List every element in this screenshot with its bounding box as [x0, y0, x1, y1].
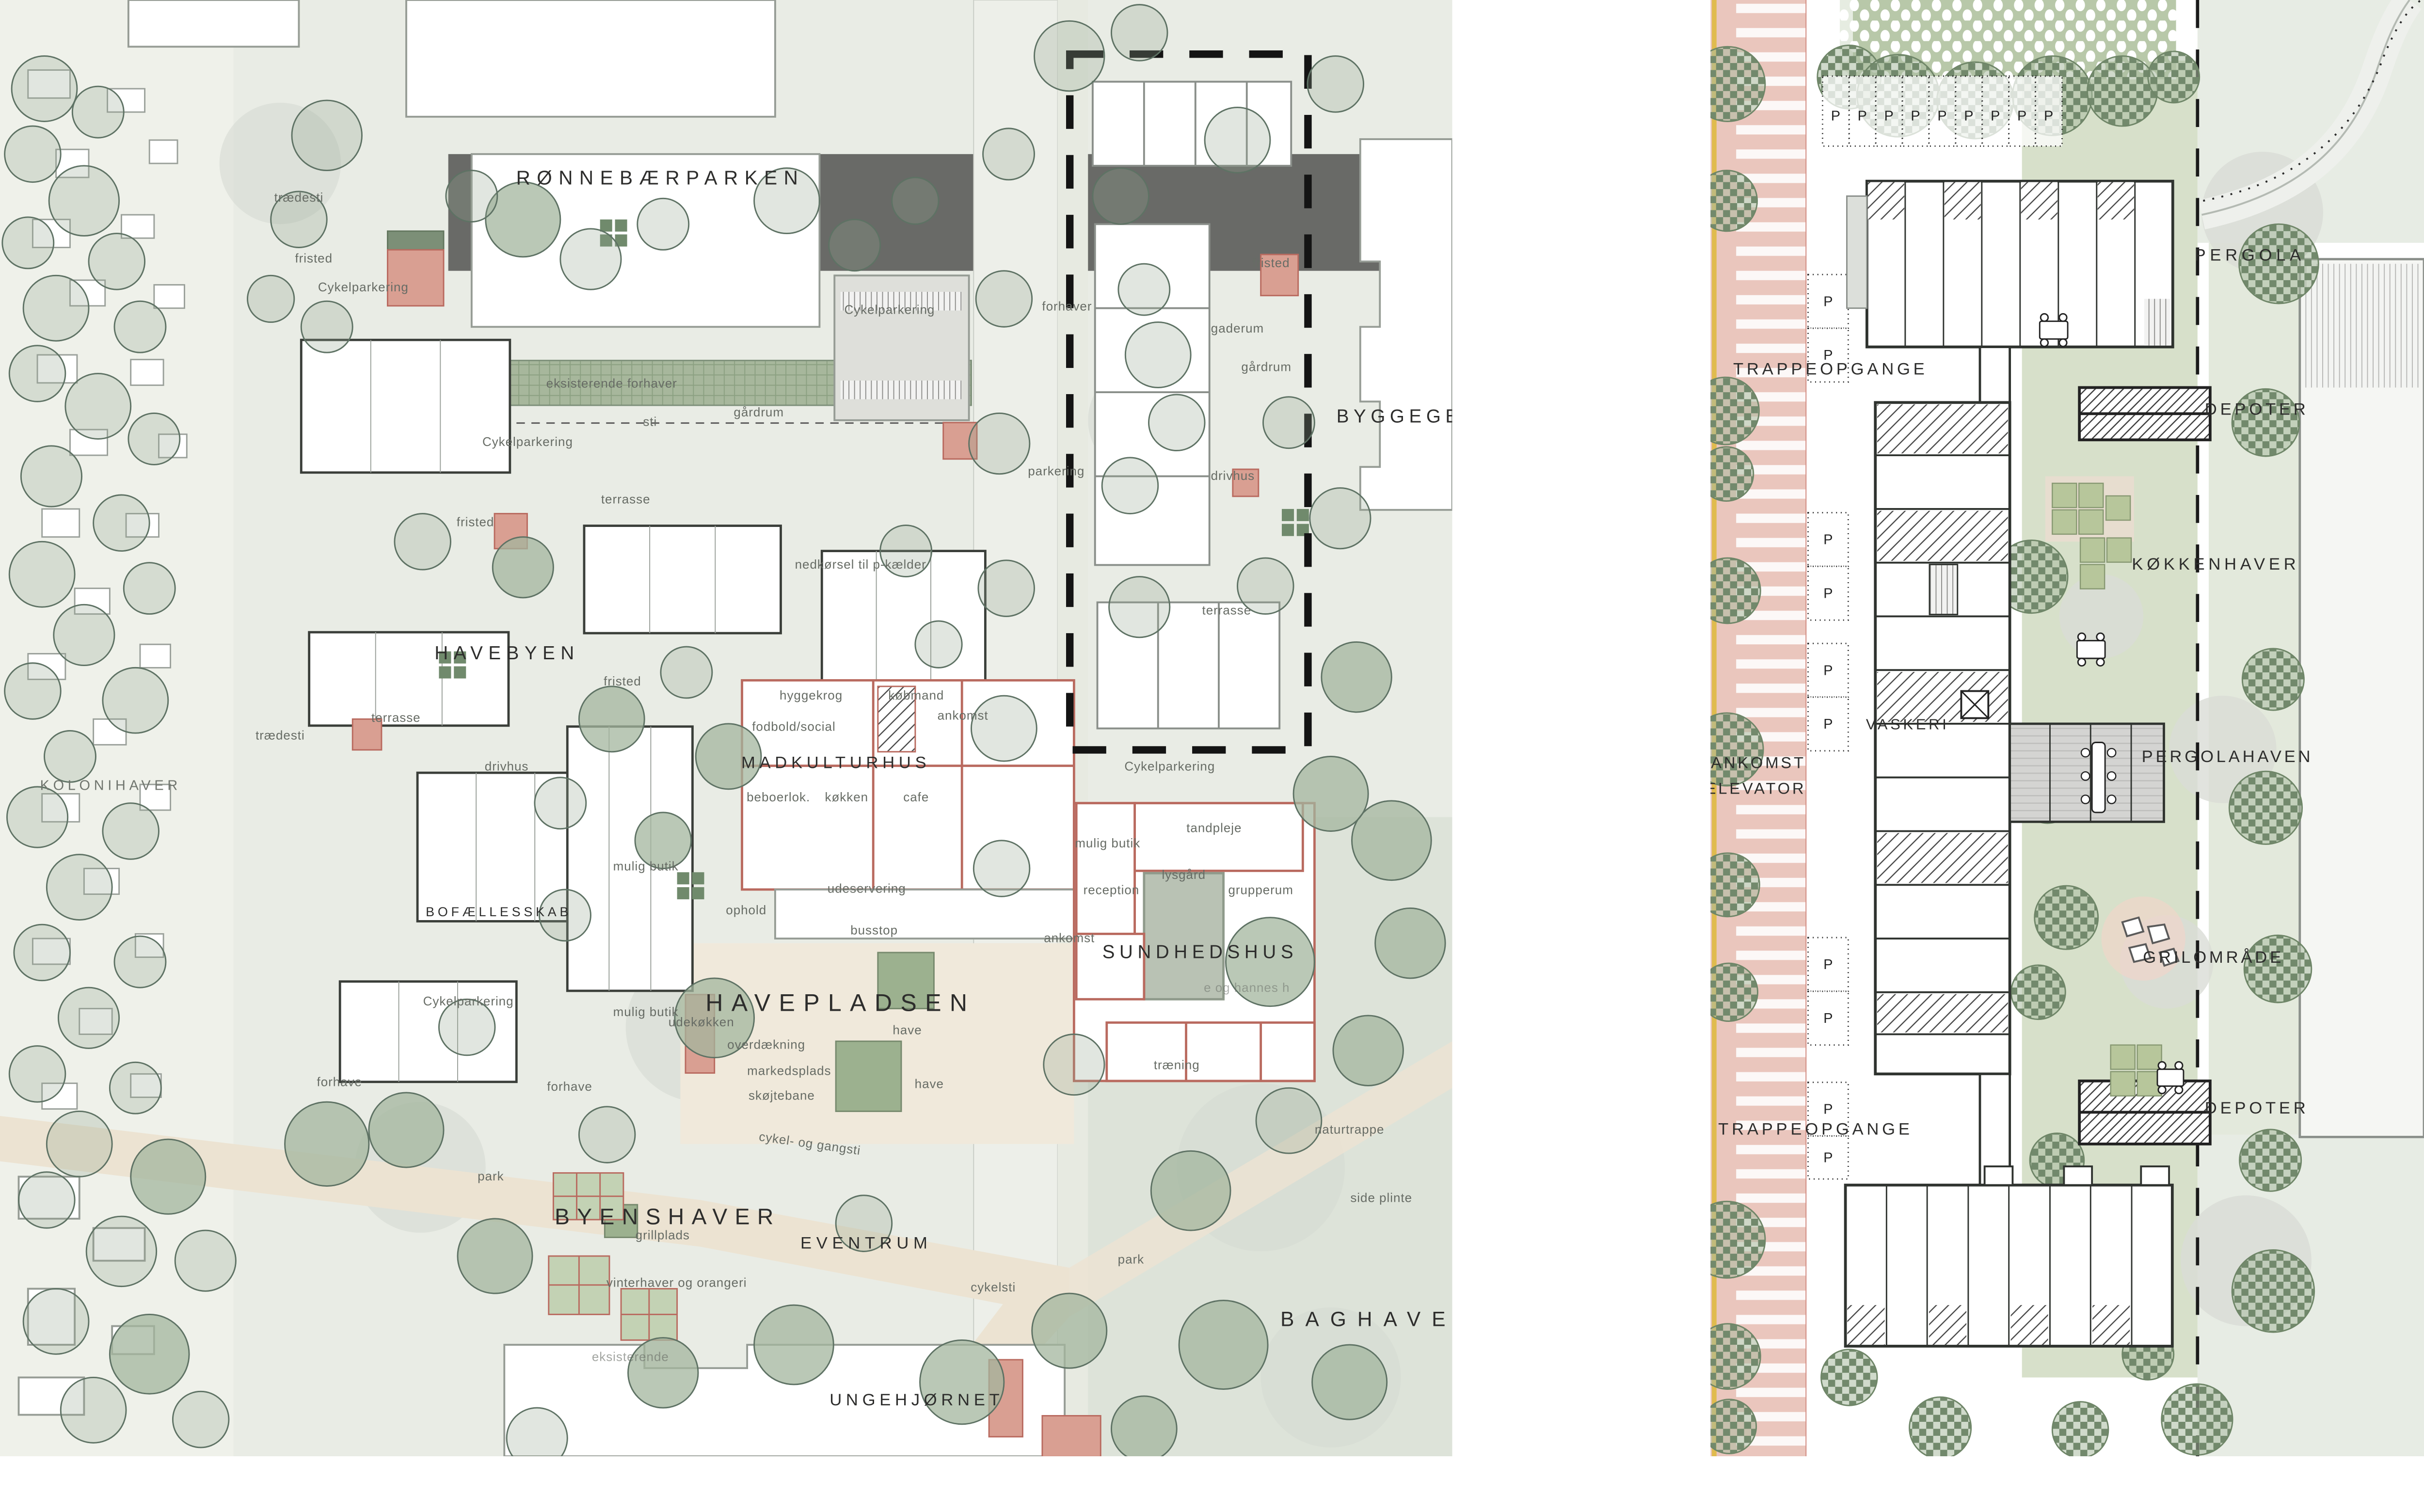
label-gaardrum1: gårdrum — [734, 405, 784, 419]
label-madkulturhus: MADKULTURHUS — [741, 753, 930, 772]
label-vaskeri: VASKERI — [1866, 716, 1949, 733]
label-sti: sti — [643, 414, 657, 429]
parking-p-marker: P — [1823, 716, 1833, 732]
label-ronnebaerparken: RØNNEBÆRPARKEN — [516, 166, 805, 189]
label-grilomraade: GRILOMRÅDE — [2143, 948, 2284, 967]
label-markedsplads: markedsplads — [747, 1063, 831, 1078]
label-terrasse1: terrasse — [601, 492, 651, 506]
parking-p-marker: P — [1831, 109, 1840, 124]
label-pergola: PERGOLA — [2195, 246, 2305, 264]
parking-p-marker: P — [1823, 586, 1833, 601]
label-drivhus2: drivhus — [485, 759, 529, 773]
label-kolonihaver: KOLONIHAVER — [40, 778, 181, 794]
label-cykelparkering2: Cykelparkering — [844, 302, 935, 317]
label-kokkenhaver: KØKKENHAVER — [2132, 555, 2299, 573]
label-cafe: cafe — [903, 790, 929, 804]
label-fodbold_social: fodbold/social — [752, 719, 835, 733]
left-panel — [0, 0, 1452, 1456]
stair-shaft — [1930, 565, 1958, 615]
parking-p-marker: P — [1964, 109, 1973, 124]
grill-spot — [2101, 896, 2185, 980]
label-gaderum: gaderum — [1211, 321, 1264, 335]
label-hannes: e og hannes h — [1204, 980, 1290, 995]
south-terrace-row — [1846, 1166, 2172, 1346]
label-bofaellesskab: BOFÆLLESSKAB — [426, 905, 572, 919]
label-side_plinte: side plinte — [1350, 1190, 1412, 1205]
label-depoter_top: DEPOTER — [2205, 400, 2309, 418]
label-skojtebane: skøjtebane — [749, 1088, 815, 1102]
label-reception: reception — [1084, 883, 1140, 897]
parking-p-marker: P — [2017, 109, 2026, 124]
label-kobmand: købmand — [888, 688, 944, 702]
parking-p-marker: P — [1823, 532, 1833, 548]
label-ankomst: ANKOMST — [1711, 753, 1806, 771]
label-fristed4: fristed — [604, 674, 641, 688]
right-panel: PPPPPPPPPPPPPPPPPPP — [1689, 0, 2424, 1456]
label-pergolahaven: PERGOLAHAVEN — [2142, 748, 2313, 766]
label-ophold: ophold — [726, 903, 766, 917]
label-cykelparkering1: Cykelparkering — [318, 280, 409, 294]
label-ungehjornet: UNGEHJØRNET — [829, 1391, 1004, 1409]
label-depoter_bottom: DEPOTER — [2205, 1099, 2309, 1117]
label-baghave: BAGHAVE — [1280, 1308, 1457, 1331]
label-overdaekning: overdækning — [727, 1037, 805, 1051]
label-naturtrappe: naturtrappe — [1315, 1122, 1385, 1137]
label-cykelparkering5: Cykelparkering — [423, 994, 514, 1008]
label-parkering: parkering — [1028, 464, 1084, 478]
label-terrasse2: terrasse — [1202, 603, 1252, 618]
label-sundhedshus: SUNDHEDSHUS — [1102, 941, 1298, 962]
label-traedesti2: trædesti — [255, 728, 305, 743]
label-forhaver: forhaver — [1042, 299, 1092, 314]
parking-p-marker: P — [1937, 109, 1946, 124]
label-terrasse3: terrasse — [371, 710, 421, 725]
bike-rack-rows2 — [841, 381, 962, 399]
parking-p-marker: P — [1823, 294, 1833, 309]
label-lysgaard: lysgård — [1162, 867, 1206, 882]
label-eventrum: EVENTRUM — [800, 1234, 932, 1253]
label-forhave1: forhave — [317, 1074, 362, 1089]
elevator-symbol — [1961, 691, 1988, 718]
east-building — [2300, 259, 2424, 1137]
label-grupperum: grupperum — [1228, 883, 1293, 897]
label-ankomst1: ankomst — [938, 708, 989, 722]
label-byggege: BYGGEGE — [1337, 406, 1463, 427]
label-vinterhaver: vinterhaver og orangeri — [606, 1275, 747, 1290]
label-eksisterende: eksisterende — [592, 1350, 669, 1364]
label-fristed3: fristed — [457, 515, 494, 529]
parking-p-marker: P — [1823, 1011, 1833, 1026]
label-eksisterende_forhaver: eksisterende forhaver — [546, 376, 677, 390]
label-ankomst2: ankomst — [1044, 931, 1095, 945]
label-havebyen: HAVEBYEN — [434, 643, 579, 664]
main-slab-building — [1875, 347, 2009, 1185]
label-gaardrum2: gårdrum — [1241, 360, 1292, 374]
label-hyggekrog: hyggekrog — [780, 688, 843, 702]
label-udeservering: udeservering — [828, 881, 906, 896]
label-traedesti1: trædesti — [274, 190, 324, 205]
parking-p-marker: P — [1911, 109, 1920, 124]
label-elevator: ELEVATOR — [1706, 779, 1806, 797]
label-traening: træning — [1154, 1058, 1200, 1072]
ungehjornet-pavilion2 — [1042, 1416, 1100, 1456]
parking-p-marker: P — [1823, 1102, 1833, 1117]
parking-p-marker: P — [1858, 109, 1867, 124]
label-park2: park — [1118, 1252, 1144, 1266]
label-have2: have — [915, 1076, 944, 1091]
label-busstop: busstop — [850, 923, 898, 937]
label-nedkoersel: nedkørsel til p-kælder — [795, 557, 926, 572]
label-park1: park — [478, 1169, 504, 1183]
label-kokken: køkken — [825, 790, 868, 804]
panel-gutter — [1452, 0, 1711, 1456]
label-havepladsen: HAVEPLADSEN — [705, 989, 975, 1016]
label-cykelsti: cykelsti — [971, 1280, 1016, 1294]
label-fristed2: fristed — [1252, 255, 1290, 270]
parking-p-marker: P — [1991, 109, 2000, 124]
label-trappeopgange_top: TRAPPEOPGANGE — [1733, 360, 1928, 378]
parking-p-marker: P — [1823, 957, 1833, 972]
label-mulig_butik2: mulig butik — [613, 859, 679, 873]
label-fristed1: fristed — [295, 251, 333, 265]
label-byenshaver: BYENSHAVER — [555, 1204, 781, 1229]
parking-p-marker: P — [1823, 663, 1833, 678]
label-have1: have — [893, 1022, 922, 1037]
site-plan-canvas: PPPPPPPPPPPPPPPPPPP — [0, 0, 2424, 1456]
parking-p-marker: P — [2044, 109, 2053, 124]
porches — [1985, 1166, 2169, 1185]
long-table — [2092, 742, 2105, 812]
label-grillplads: grillplads — [636, 1227, 690, 1242]
label-forhave2: forhave — [547, 1079, 592, 1094]
parking-p-marker: P — [1823, 1150, 1833, 1165]
parking-p-marker: P — [1884, 109, 1894, 124]
label-cykelparkering4: Cykelparkering — [1124, 759, 1215, 773]
label-tandpleje: tandpleje — [1186, 820, 1242, 835]
label-mulig_butik1: mulig butik — [1075, 836, 1140, 850]
pergola-deck-wing — [2010, 724, 2164, 822]
label-trappeopgange_bottom: TRAPPEOPGANGE — [1718, 1120, 1913, 1139]
label-cykelparkering3: Cykelparkering — [482, 434, 573, 449]
label-udekokken: udekøkken — [669, 1015, 734, 1029]
label-drivhus1: drivhus — [1211, 468, 1255, 483]
north-terrace-row — [1847, 181, 2172, 347]
label-beboerlok: beboerlok. — [747, 790, 810, 804]
